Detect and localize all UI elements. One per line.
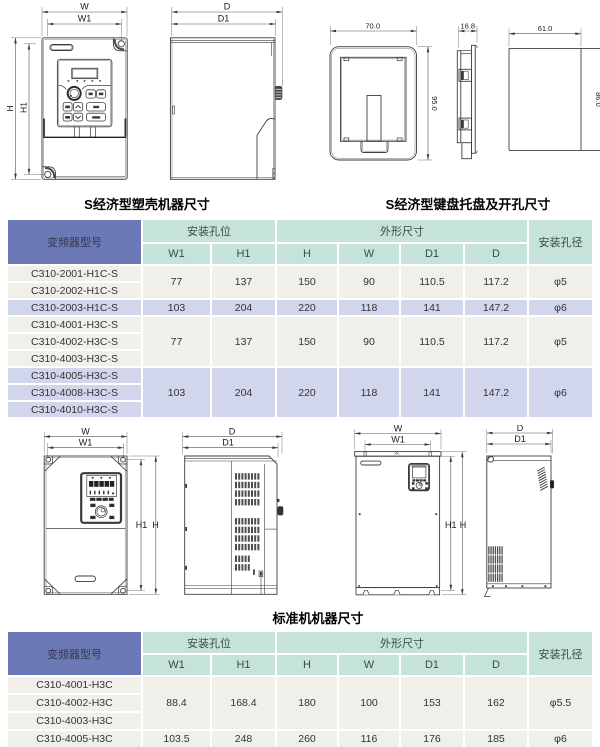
svg-text:D: D bbox=[517, 425, 524, 433]
svg-text:W: W bbox=[81, 426, 90, 436]
svg-text:70.0: 70.0 bbox=[365, 22, 380, 31]
svg-text:W: W bbox=[80, 2, 89, 12]
svg-text:D: D bbox=[224, 2, 231, 12]
svg-text:W1: W1 bbox=[78, 14, 92, 24]
svg-text:D: D bbox=[229, 426, 236, 436]
svg-text:86.0: 86.0 bbox=[594, 92, 600, 107]
svg-text:95.0: 95.0 bbox=[430, 96, 439, 111]
svg-text:H1: H1 bbox=[19, 102, 29, 113]
svg-text:W: W bbox=[394, 425, 403, 433]
svg-text:D1: D1 bbox=[514, 434, 526, 444]
svg-text:H: H bbox=[5, 105, 15, 111]
svg-text:61.0: 61.0 bbox=[538, 24, 553, 33]
svg-text:H: H bbox=[152, 520, 159, 530]
svg-text:D1: D1 bbox=[218, 14, 230, 24]
svg-text:D1: D1 bbox=[222, 437, 234, 447]
svg-text:H1: H1 bbox=[136, 520, 148, 530]
svg-text:16.8: 16.8 bbox=[460, 22, 475, 31]
svg-text:H1: H1 bbox=[445, 520, 457, 530]
svg-text:W1: W1 bbox=[79, 437, 93, 447]
svg-text:W1: W1 bbox=[391, 434, 405, 444]
svg-text:H: H bbox=[460, 520, 467, 530]
